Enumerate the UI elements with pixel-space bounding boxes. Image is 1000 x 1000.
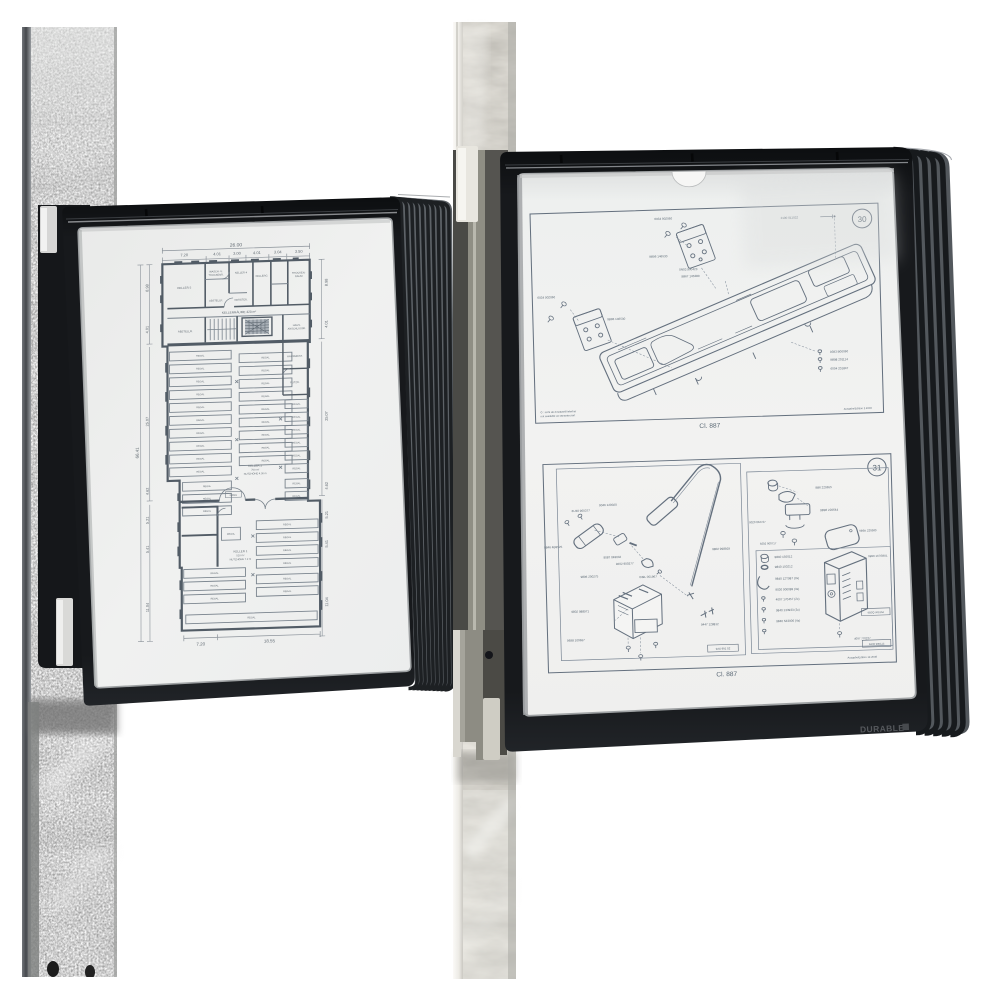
svg-text:9B67 145380: 9B67 145380 [681,274,700,279]
svg-text:KELLER 5: KELLER 5 [177,286,191,290]
svg-text:11.04: 11.04 [324,596,329,606]
svg-text:HAUSMEIST.: HAUSMEIST. [287,354,303,358]
svg-text:0N03 900423: 0N03 900423 [679,267,698,272]
svg-text:9046 129020: 9046 129020 [599,503,617,508]
svg-text:9202 900377: 9202 900377 [616,562,634,567]
svg-text:REGAL: REGAL [196,367,205,370]
svg-text:9840 12T987 (3x): 9840 12T987 (3x) [775,576,799,581]
svg-text:REGAL: REGAL [292,441,301,444]
svg-text:4.01: 4.01 [144,326,149,334]
svg-text:510 m²: 510 m² [236,553,244,557]
svg-text:REGAL: REGAL [211,572,220,575]
svg-text:9698 100697: 9698 100697 [567,638,585,643]
svg-text:REGAL: REGAL [283,590,292,593]
svg-text:6034 902060: 6034 902060 [537,295,555,300]
svg-text:5.21: 5.21 [324,511,329,519]
svg-text:4.01: 4.01 [324,320,329,328]
svg-text:9840 150012: 9840 150012 [774,555,792,560]
svg-text:KELLERG.: KELLERG. [256,274,269,278]
svg-text:7.20: 7.20 [196,641,205,646]
svg-text:9B3Q 001964: 9B3Q 001964 [868,610,885,614]
svg-text:REGAL: REGAL [211,597,220,600]
svg-text:4.62: 4.62 [145,488,150,496]
svg-text:4.62: 4.62 [324,482,329,490]
svg-text:3.00: 3.00 [233,251,242,256]
svg-text:REGAL: REGAL [292,454,301,457]
svg-text:REGAL: REGAL [283,523,292,526]
svg-text:Cl. 887: Cl. 887 [716,671,737,679]
svg-text:9A96 980113: 9A96 980113 [869,642,885,646]
svg-text:REGAL: REGAL [283,577,292,580]
svg-text:9840 133933 (3x): 9840 133933 (3x) [776,608,800,613]
svg-text:4007 170457 (2x): 4007 170457 (2x) [776,597,800,602]
svg-text:DURABLE: DURABLE [860,723,905,735]
svg-text:REGAL: REGAL [196,393,205,396]
svg-text:REGAL: REGAL [196,419,205,422]
svg-text:REGAL: REGAL [261,356,270,359]
svg-text:REGAL: REGAL [262,421,271,424]
svg-text:9393 B00060: 9393 B00060 [830,349,849,354]
svg-text:REGAL: REGAL [292,403,301,406]
svg-text:REGAL: REGAL [203,510,212,513]
svg-text:NUTZHÖHE 4.30 m: NUTZHÖHE 4.30 m [244,471,267,476]
svg-text:REGAL: REGAL [203,485,212,488]
svg-text:6034 902060: 6034 902060 [654,217,672,222]
svg-text:8.98: 8.98 [324,279,329,287]
svg-text:RAUM: RAUM [295,274,303,278]
svg-text:18.55: 18.55 [264,638,276,643]
svg-text:9087 049042: 9087 049042 [603,555,621,560]
svg-text:REGAL: REGAL [292,428,301,431]
svg-text:26.00: 26.00 [230,242,243,248]
svg-text:PUTZR.: PUTZR. [290,380,300,384]
svg-text:66.41: 66.41 [135,447,140,459]
svg-text:REGAL: REGAL [283,549,292,552]
svg-text:REGAL: REGAL [293,482,302,485]
svg-text:REGAL: REGAL [211,584,220,587]
svg-text:KELLER 2: KELLER 2 [248,463,262,467]
svg-text:REGAL: REGAL [262,395,271,398]
svg-text:REGAL: REGAL [196,432,205,435]
svg-text:9840 5Z3000 (4x): 9840 5Z3000 (4x) [776,619,800,624]
svg-text:9896 200275: 9896 200275 [581,574,599,579]
svg-text:9840 150212: 9840 150212 [775,564,793,569]
svg-text:REGAL: REGAL [196,457,205,460]
svg-text:7.20: 7.20 [180,252,189,257]
svg-text:ANSCHLUSSR.: ANSCHLUSSR. [288,326,307,331]
svg-text:REGAL: REGAL [196,380,205,383]
svg-text:5.41: 5.41 [324,540,329,548]
svg-text:REGAL: REGAL [283,536,292,539]
svg-text:9202 900717: 9202 900717 [760,541,777,545]
svg-text:REGAL: REGAL [261,369,270,372]
svg-text:9030 900089 (3x): 9030 900089 (3x) [775,587,799,592]
svg-text:9B96 220644: 9B96 220644 [820,508,839,513]
svg-text:25.07: 25.07 [145,417,150,427]
svg-text:GERÄTER.: GERÄTER. [234,297,247,301]
svg-text:ABSTELLR.: ABSTELLR. [209,298,223,302]
svg-text:9B96 146530: 9B96 146530 [607,317,626,322]
svg-text:REGAL: REGAL [196,470,205,473]
svg-text:REGAL: REGAL [292,416,301,419]
svg-text:REGAL: REGAL [196,445,205,448]
svg-text:REGAL: REGAL [196,354,205,357]
svg-text:25.07: 25.07 [324,411,329,421]
svg-text:9B98 201114: 9B98 201114 [830,357,848,362]
svg-text:REGAL: REGAL [227,533,236,536]
svg-text:REGAL: REGAL [262,434,271,437]
svg-text:4.01: 4.01 [213,251,221,256]
svg-text:6U30 900377: 6U30 900377 [572,509,591,514]
svg-text:NUTZHÖHE 7.2 m: NUTZHÖHE 7.2 m [230,557,252,562]
svg-text:REGAL: REGAL [283,562,292,565]
svg-text:KELLER 1: KELLER 1 [233,549,247,553]
svg-text:9B6 220655: 9B6 220655 [815,485,832,489]
svg-text:5.41: 5.41 [145,546,150,554]
svg-text:9020 052727: 9020 052727 [749,520,766,524]
svg-text:4.01: 4.01 [253,250,261,255]
svg-text:9B50 167GB51: 9B50 167GB51 [868,554,888,559]
svg-text:REGAL: REGAL [262,459,271,462]
svg-text:11.04: 11.04 [145,602,150,612]
svg-text:9B96 146530: 9B96 146530 [649,254,668,259]
svg-text:700 m²: 700 m² [251,467,259,471]
svg-text:9447 128812: 9447 128812 [701,622,719,627]
svg-text:REGAL: REGAL [262,408,271,411]
svg-text:3.04: 3.04 [274,249,283,254]
svg-text:GANG: GANG [230,493,238,497]
svg-text:9A6 991 02: 9A6 991 02 [716,646,731,650]
svg-text:5.21: 5.21 [145,517,150,525]
svg-text:ABSTELLR.: ABSTELLR. [178,329,193,333]
svg-text:3.50: 3.50 [295,249,304,254]
svg-text:TROCKENR.: TROCKENR. [209,272,225,276]
svg-text:9846 4B9525: 9846 4B9525 [544,545,563,550]
svg-text:049L 051967: 049L 051967 [639,575,657,580]
svg-text:9B6K 220680: 9B6K 220680 [859,528,877,532]
svg-text:9802 988971: 9802 988971 [571,609,589,614]
svg-text:6004 201847: 6004 201847 [830,366,848,371]
svg-text:KELLER 4: KELLER 4 [235,270,248,274]
svg-text:9802 998929: 9802 998929 [712,547,730,552]
svg-text:REGAL: REGAL [247,616,256,619]
svg-text:REGAL: REGAL [262,446,271,449]
svg-text:8.98: 8.98 [144,284,149,292]
svg-text:REGAL: REGAL [293,467,302,470]
svg-text:REGAL: REGAL [262,382,271,385]
svg-text:Cl. 887: Cl. 887 [699,422,720,430]
svg-text:REGAL: REGAL [196,406,205,409]
